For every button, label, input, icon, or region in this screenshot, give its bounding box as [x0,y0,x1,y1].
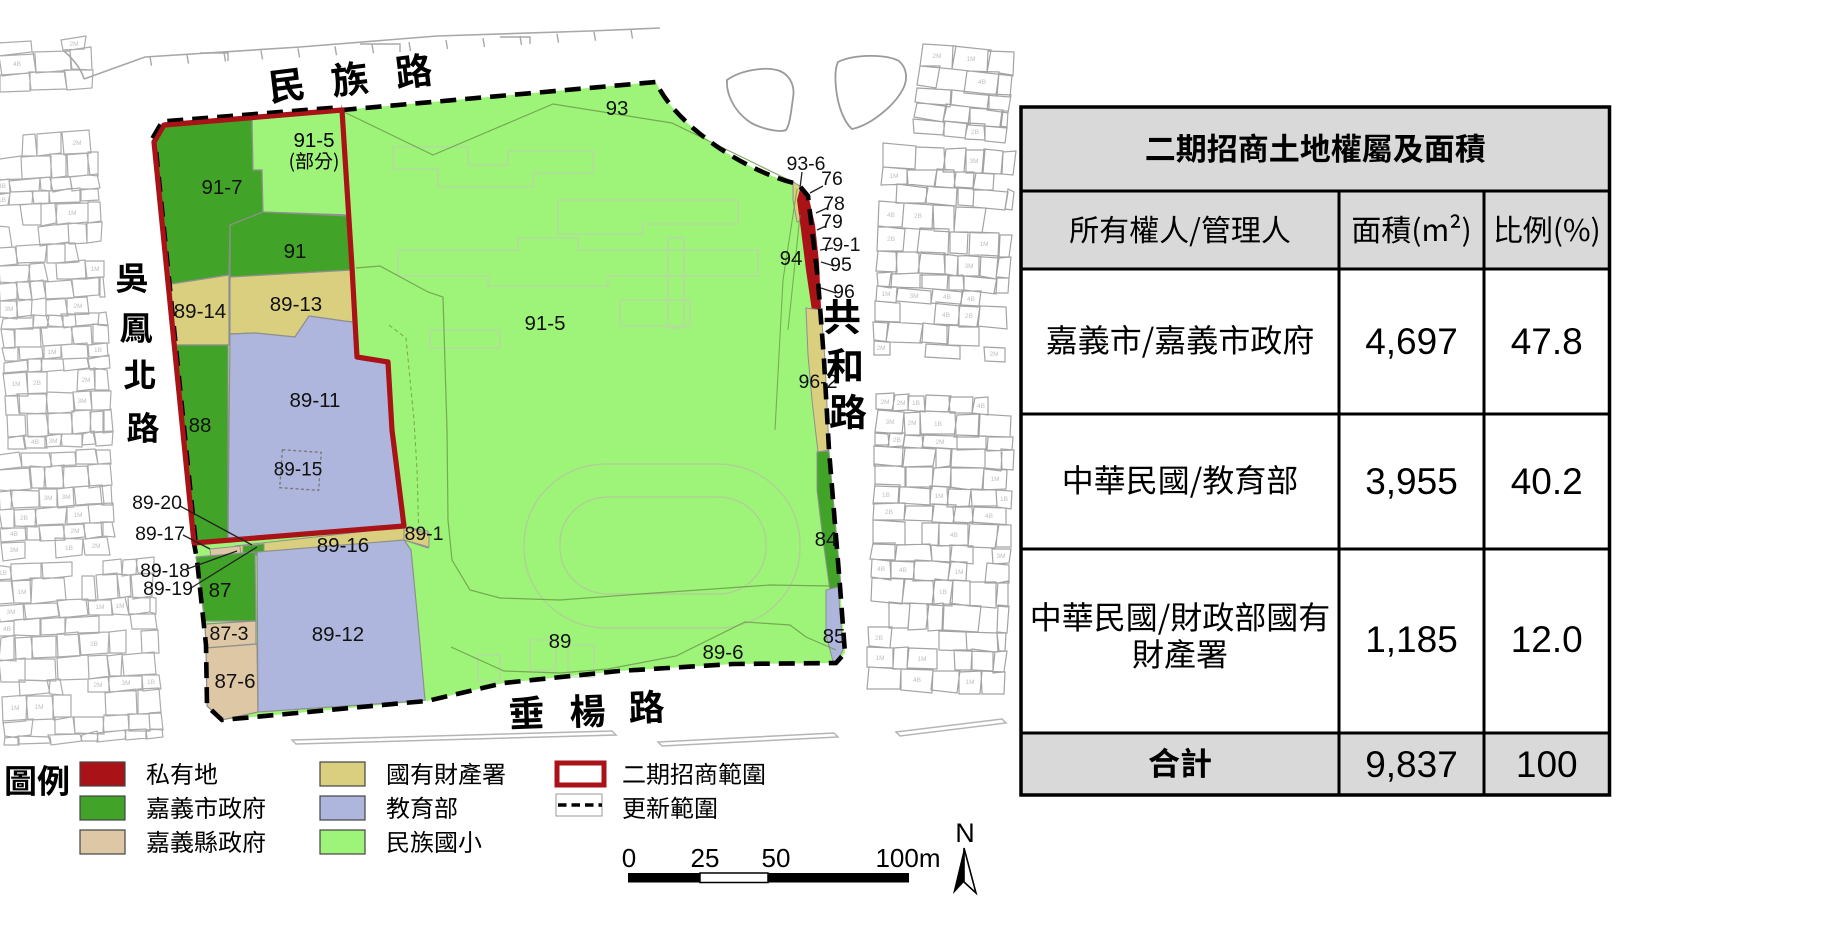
svg-text:91: 91 [284,240,307,263]
svg-text:85: 85 [823,625,846,648]
svg-text:1M: 1M [73,512,82,519]
svg-text:1M: 1M [875,655,884,662]
svg-text:2B: 2B [875,635,883,642]
svg-text:3M: 3M [885,419,894,426]
svg-text:4B: 4B [943,294,951,301]
svg-text:3M: 3M [996,553,1005,560]
svg-text:0: 0 [622,843,636,873]
svg-text:1M: 1M [47,349,56,356]
svg-text:4B: 4B [899,567,907,574]
svg-text:4B: 4B [967,296,975,303]
svg-text:4B: 4B [977,403,985,410]
svg-text:47.8: 47.8 [1511,321,1583,362]
svg-text:79: 79 [821,211,843,233]
svg-text:1M: 1M [889,173,898,180]
svg-text:1M: 1M [115,603,124,610]
svg-text:3M: 3M [77,398,86,405]
svg-text:1M: 1M [917,656,926,663]
svg-text:1B: 1B [0,570,7,577]
svg-text:89-17: 89-17 [135,523,185,545]
svg-text:2M: 2M [880,399,889,406]
svg-text:4B: 4B [10,531,18,538]
svg-text:25: 25 [691,843,720,873]
svg-text:3M: 3M [4,306,13,313]
svg-text:2M: 2M [935,439,944,446]
svg-text:12.0: 12.0 [1511,619,1583,660]
svg-text:2M: 2M [932,53,941,60]
svg-text:88: 88 [189,414,212,437]
svg-text:1M: 1M [67,210,76,217]
svg-text:3,955: 3,955 [1365,461,1458,502]
svg-text:2B: 2B [971,129,979,136]
svg-text:3M: 3M [969,158,978,165]
svg-text:1B: 1B [934,421,942,428]
svg-text:4B: 4B [985,513,993,520]
svg-text:4B: 4B [13,61,21,68]
svg-text:1M: 1M [10,705,19,712]
svg-text:2B: 2B [914,213,922,220]
svg-text:4B: 4B [877,566,885,573]
svg-text:N: N [955,818,975,848]
svg-text:93-6: 93-6 [786,153,825,175]
svg-text:4B: 4B [31,439,39,446]
svg-text:3M: 3M [43,495,52,502]
svg-text:2M: 2M [907,420,916,427]
svg-text:89-15: 89-15 [274,460,323,481]
svg-text:4B: 4B [3,626,11,633]
svg-text:87-6: 87-6 [214,670,255,693]
svg-text:4B: 4B [887,212,895,219]
svg-text:1M: 1M [954,569,963,576]
svg-text:89-11: 89-11 [290,389,341,412]
svg-text:1B: 1B [1000,496,1008,503]
svg-text:40.2: 40.2 [1511,461,1583,502]
svg-text:3M: 3M [9,547,18,554]
svg-text:1M: 1M [934,493,943,500]
svg-text:93: 93 [606,97,629,120]
svg-text:87: 87 [209,579,232,602]
svg-text:2M: 2M [69,41,78,48]
svg-text:3M: 3M [909,293,918,300]
svg-text:91-5: 91-5 [293,129,334,152]
svg-text:2M: 2M [93,682,102,689]
svg-text:50: 50 [762,843,791,873]
svg-text:4B: 4B [913,677,921,684]
svg-text:9,837: 9,837 [1365,744,1458,785]
svg-text:1M: 1M [95,604,104,611]
svg-text:89-12: 89-12 [312,623,364,646]
svg-text:2M: 2M [81,377,90,384]
svg-text:1M: 1M [966,56,975,63]
svg-text:1M: 1M [965,679,974,686]
svg-text:91-7: 91-7 [201,176,242,199]
svg-text:87-3: 87-3 [209,623,248,645]
svg-text:95: 95 [830,254,852,276]
svg-text:1,185: 1,185 [1365,619,1458,660]
svg-text:1M: 1M [90,266,99,273]
svg-text:4B: 4B [950,532,958,539]
svg-text:4B: 4B [942,312,950,319]
svg-text:4,697: 4,697 [1365,321,1458,362]
svg-text:2M: 2M [91,543,100,550]
svg-text:2M: 2M [73,303,82,310]
svg-text:100: 100 [1516,744,1578,785]
svg-text:1M: 1M [17,589,26,596]
svg-text:1B: 1B [94,347,102,354]
svg-text:89-16: 89-16 [317,534,369,557]
svg-text:2B: 2B [20,515,28,522]
svg-text:1M: 1M [34,704,43,711]
svg-text:91-5: 91-5 [524,312,565,335]
svg-text:1B: 1B [882,492,890,499]
svg-text:1B: 1B [65,545,73,552]
svg-text:3M: 3M [964,263,973,270]
svg-text:94: 94 [780,247,803,270]
svg-text:89-1: 89-1 [404,523,443,545]
svg-text:2B: 2B [893,437,901,444]
svg-text:2M: 2M [72,140,81,147]
svg-text:2M: 2M [896,400,905,407]
svg-text:3M: 3M [6,609,15,616]
svg-text:2B: 2B [887,236,895,243]
svg-text:3M: 3M [121,680,130,687]
svg-text:2B: 2B [33,380,41,387]
svg-text:1M: 1M [881,291,890,298]
svg-text:2B: 2B [885,509,893,516]
svg-text:2M: 2M [989,351,998,358]
svg-text:79-1: 79-1 [821,234,860,256]
svg-text:2M: 2M [876,345,885,352]
svg-text:1M: 1M [979,241,988,248]
svg-text:89-6: 89-6 [702,641,743,664]
svg-text:4B: 4B [0,183,6,190]
svg-text:4B: 4B [978,79,986,86]
svg-text:84: 84 [815,528,838,551]
svg-text:3M: 3M [48,438,57,445]
svg-text:89: 89 [549,630,572,653]
svg-text:100m: 100m [875,843,940,873]
svg-text:1B: 1B [912,400,920,407]
svg-text:76: 76 [821,168,843,190]
svg-text:2B: 2B [90,641,98,648]
svg-text:89-20: 89-20 [132,492,182,514]
svg-text:1B: 1B [939,589,947,596]
svg-text:2B: 2B [965,313,973,320]
svg-text:1B: 1B [147,679,155,686]
svg-text:89-14: 89-14 [174,300,226,323]
svg-text:2M: 2M [70,528,79,535]
svg-text:1M: 1M [990,476,999,483]
svg-text:3M: 3M [61,494,70,501]
svg-text:89-13: 89-13 [270,293,322,316]
svg-text:1B: 1B [0,197,6,204]
svg-text:89-19: 89-19 [143,578,193,600]
svg-text:1M: 1M [11,381,20,388]
